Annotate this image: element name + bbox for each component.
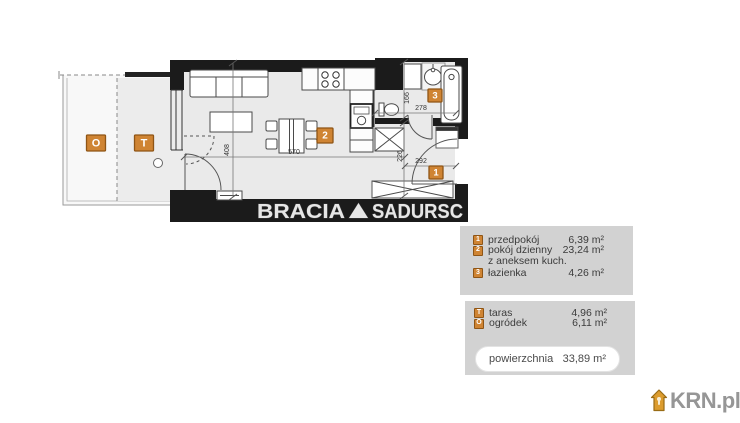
legend-row-garden: O ogródek 6,11 m² xyxy=(474,318,607,328)
legend-rooms-box: 1 przedpokój 6,39 m² 2 pokój dzienny 23,… xyxy=(460,226,633,295)
dim-living-width: 570 xyxy=(288,149,300,156)
marker-living-label: 2 xyxy=(322,131,328,142)
drain-symbol xyxy=(154,159,163,168)
marker-hall-label: 1 xyxy=(433,168,439,179)
marker-bathroom: 3 xyxy=(428,89,442,102)
legend-row-bathroom: 3 łazienka 4,26 m² xyxy=(473,268,604,278)
house-icon xyxy=(650,389,668,412)
legend-marker-hall: 1 xyxy=(473,235,483,245)
legend-marker-living: 2 xyxy=(473,246,483,256)
bathtub xyxy=(441,66,462,123)
toilet xyxy=(379,103,399,116)
floorplan: 408 570 166 278 226 292 O T 2 3 1 BRACIA xyxy=(40,10,480,235)
watermark-part2: SADURSC xyxy=(372,201,463,223)
legend-marker-garden: O xyxy=(474,319,484,329)
dim-hall-height: 226 xyxy=(397,150,404,162)
sofa xyxy=(190,70,268,97)
legend-area: 6,11 m² xyxy=(572,318,607,328)
coffee-table xyxy=(210,112,252,132)
floorplan-drawing: 408 570 166 278 226 292 O T 2 3 1 BRACIA xyxy=(40,10,480,235)
legend-marker-terrace: T xyxy=(474,308,484,318)
legend-marker-bathroom: 3 xyxy=(473,268,483,278)
watermark-part1: BRACIA xyxy=(257,201,345,223)
total-area-pill: powierzchnia 33,89 m² xyxy=(475,346,620,372)
legend-label: ogródek xyxy=(489,318,527,328)
marker-garden: O xyxy=(87,135,106,151)
krn-logo-text: KRN.pl xyxy=(670,388,740,414)
total-area-value: 33,89 m² xyxy=(563,353,606,365)
kitchen-sink xyxy=(351,104,373,128)
bathroom-cabinet xyxy=(404,64,421,89)
legend-outdoor-box: T taras 4,96 m² O ogródek 6,11 m² powier… xyxy=(465,301,635,375)
legend-area: 23,24 m² xyxy=(563,245,604,255)
dim-bath-height: 166 xyxy=(404,92,411,104)
dim-living-height: 408 xyxy=(224,144,231,156)
marker-terrace-label: T xyxy=(141,138,148,150)
washing-machine xyxy=(375,128,404,151)
legend-area: 4,26 m² xyxy=(568,268,604,278)
marker-bathroom-label: 3 xyxy=(432,91,437,102)
marker-garden-label: O xyxy=(92,138,101,150)
dim-bath-width: 278 xyxy=(415,105,427,112)
radiator xyxy=(217,191,242,200)
marker-terrace: T xyxy=(135,135,154,151)
marker-hall: 1 xyxy=(429,166,443,179)
stove xyxy=(318,68,344,90)
total-area-label: powierzchnia xyxy=(489,353,553,365)
hall-shelf xyxy=(436,127,458,148)
dim-hall-width: 292 xyxy=(415,158,427,165)
krn-logo: KRN.pl xyxy=(650,387,740,414)
legend-label: łazienka xyxy=(488,268,527,278)
legend-row-kitchenette: z aneksem kuch. xyxy=(473,256,604,266)
legend-label: z aneksem kuch. xyxy=(488,256,567,266)
marker-living: 2 xyxy=(317,128,333,143)
